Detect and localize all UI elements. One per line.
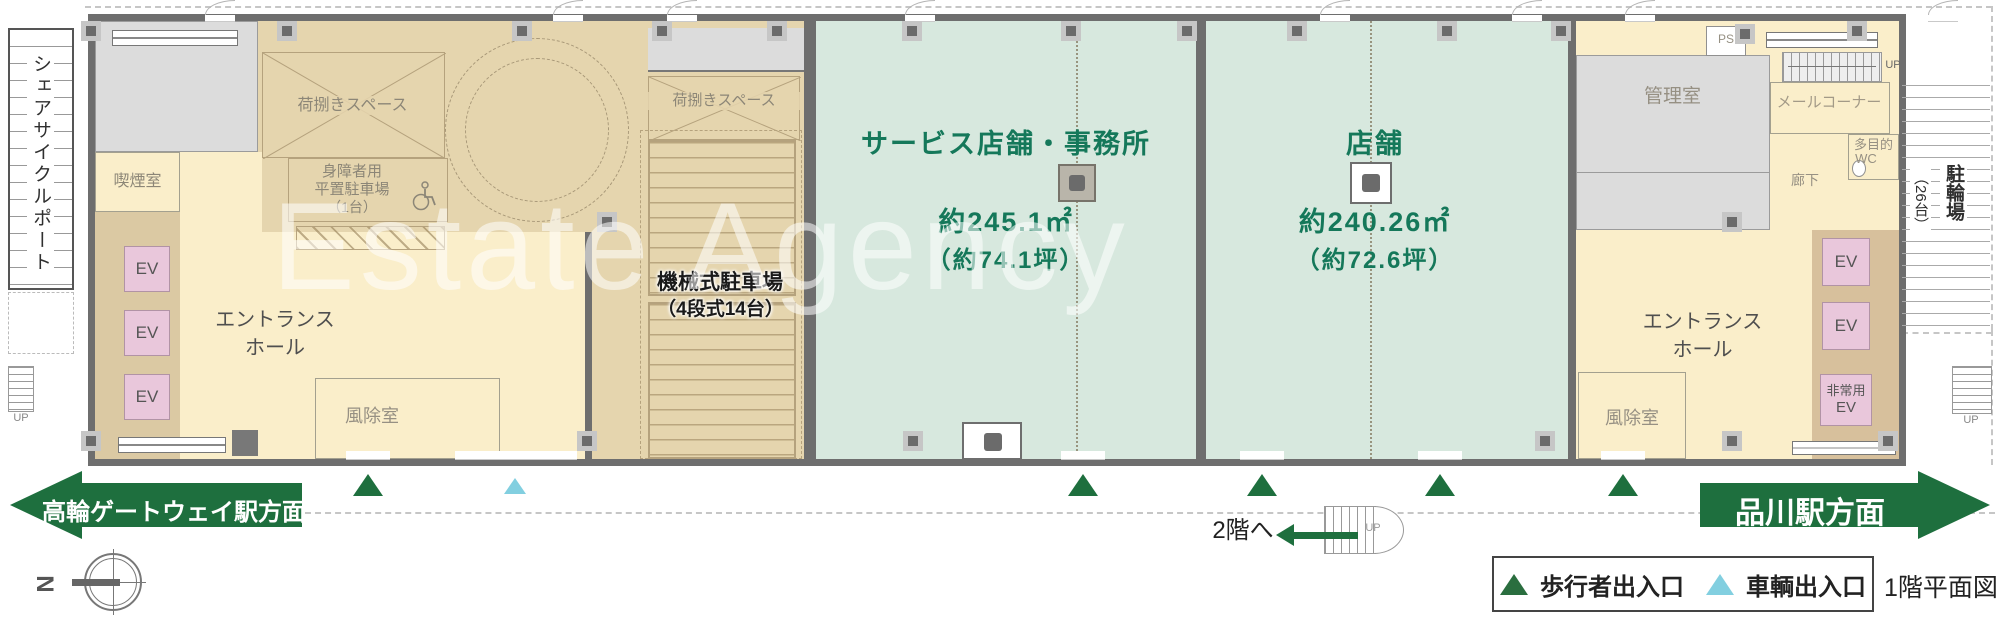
bicycle-parking-label: 駐輪場: [1940, 162, 1967, 223]
column-core: [1069, 175, 1085, 191]
site-boundary-line: [1991, 6, 1993, 330]
hatched-strip: [296, 226, 445, 250]
structural-column: [1878, 431, 1898, 451]
mechanical-parking-label-2: （4段式14台）: [638, 294, 803, 321]
elevator-label: EV: [1835, 316, 1858, 336]
legend: 歩行者出入口 車輌出入口: [1492, 556, 1874, 612]
compass-needle: [72, 579, 120, 586]
pedestrian-entrance-marker: [353, 474, 383, 496]
windbreak-left-label: 風除室: [322, 406, 422, 428]
disabled-parking-label-1: 身障者用: [292, 163, 412, 181]
structural-column: [277, 21, 297, 41]
emergency-elevator-label-2: EV: [1836, 399, 1856, 417]
stair-arrow-line: [1788, 66, 1876, 67]
turntable-inner: [465, 58, 609, 202]
structural-column: [652, 21, 672, 41]
to-second-floor-label: 2階へ: [1208, 517, 1278, 546]
structural-column-box: [1350, 162, 1392, 204]
vehicle-entrance-icon: [1706, 574, 1734, 595]
compass-north-label: N: [33, 575, 61, 592]
legend-pedestrian-label: 歩行者出入口: [1540, 567, 1684, 602]
vehicle-entrance-marker: [504, 478, 526, 494]
mail-corner-label: メールコーナー: [1768, 94, 1890, 112]
smoking-room-label: 喫煙室: [95, 172, 180, 191]
share-cycle-port-extension: [8, 292, 74, 354]
bicycle-parking-count-label: （26台）: [1910, 168, 1931, 234]
corridor-left: [180, 152, 262, 232]
pedestrian-entrance-marker: [1425, 474, 1455, 496]
elevator-label: EV: [136, 387, 159, 407]
wheelchair-icon: [408, 180, 438, 212]
structural-column: [1061, 21, 1081, 41]
disabled-parking-label-3: （1台）: [307, 199, 397, 216]
share-cycle-port-label: シェアサイクルポート: [27, 52, 54, 276]
door-opening: [1625, 15, 1655, 22]
structural-column: [767, 21, 787, 41]
elevator-label: EV: [136, 323, 159, 343]
structural-column: [1177, 21, 1197, 41]
door-opening: [553, 15, 583, 22]
outside-stair-right: [1952, 366, 1992, 414]
legend-vehicle-label: 車輌出入口: [1746, 567, 1866, 602]
left-direction-label: 高輪ゲートウェイ駅方面: [42, 492, 302, 527]
wall: [585, 232, 592, 459]
door-opening: [1240, 451, 1284, 460]
structural-column: [1722, 431, 1742, 451]
door-swing-arc: [553, 0, 583, 15]
door-swing-arc: [905, 0, 935, 15]
structural-column: [902, 21, 922, 41]
door-opening: [1928, 15, 1958, 22]
pedestrian-entrance-marker: [1247, 474, 1277, 496]
elevator-left-2: EV: [124, 310, 170, 356]
windbreak-right-label: 風除室: [1582, 408, 1682, 430]
entrance-hall-left-label-1: エントランス: [175, 308, 375, 332]
structural-column: [577, 431, 597, 451]
entrance-hall-right-label-1: エントランス: [1595, 310, 1810, 334]
manager-room-divider: [1576, 172, 1770, 173]
structural-column: [1535, 431, 1555, 451]
manager-room: [1576, 55, 1770, 230]
corridor-label: 廊下: [1780, 172, 1830, 189]
door-opening: [346, 451, 390, 460]
pedestrian-entrance-icon: [1500, 574, 1528, 595]
door-opening: [1320, 15, 1350, 22]
right-arrow-head: [1918, 471, 1990, 539]
site-boundary-line: [85, 6, 1992, 8]
mechanical-parking-label-1: 機械式駐車場: [640, 266, 800, 296]
floor-mat: [232, 430, 258, 456]
structural-column: [597, 212, 617, 232]
door-opening: [1061, 451, 1105, 460]
wc-label-2: WC: [1844, 151, 1888, 167]
outside-stair-left: [8, 366, 34, 412]
door-opening: [1601, 451, 1645, 460]
structural-column: [1551, 21, 1571, 41]
elevator-label: EV: [136, 259, 159, 279]
pedestrian-entrance-marker: [1068, 474, 1098, 496]
emergency-elevator-label-1: 非常用: [1826, 383, 1865, 399]
wall: [804, 21, 816, 459]
door-swing-arc: [205, 0, 235, 15]
structural-column: [81, 431, 101, 451]
disabled-parking-label-2: 平置駐車場: [287, 181, 417, 199]
structural-column: [1287, 21, 1307, 41]
stair-up-label: UP: [6, 412, 36, 425]
loading-space-1-label: 荷捌きスペース: [270, 96, 435, 115]
to-2f-arrow-body: [1292, 532, 1358, 539]
column-core: [1362, 174, 1380, 192]
door-opening: [1512, 15, 1542, 22]
structural-column: [903, 431, 923, 451]
door-swing-arc: [1512, 0, 1542, 15]
tenant-shop-area-tsubo: （約72.6坪）: [1205, 240, 1545, 275]
stair-top-right: [1782, 52, 1882, 82]
door-swing-arc: [1320, 0, 1350, 15]
tenant-service-area-sqm: 約245.1㎡: [826, 200, 1186, 239]
entrance-hall-right-label-2: ホール: [1595, 338, 1810, 362]
structural-column: [1722, 212, 1742, 232]
pedestrian-entrance-marker: [1608, 474, 1638, 496]
structural-column-box: [1058, 164, 1096, 202]
louver-top-left: [112, 30, 238, 46]
structural-column: [1437, 21, 1457, 41]
door-swing-arc: [667, 0, 697, 15]
tenant-shop-name: 店舗: [1205, 122, 1545, 161]
elevator-right-2: EV: [1822, 302, 1870, 350]
elevator-left-1: EV: [124, 246, 170, 292]
tenant-shop-area-sqm: 約240.26㎡: [1205, 200, 1545, 239]
tenant-service-area-tsubo: （約74.1坪）: [826, 240, 1186, 275]
elevator-right-1: EV: [1822, 238, 1870, 286]
loading-space-2-label: 荷捌きスペース: [648, 92, 800, 110]
manager-room-label: 管理室: [1580, 86, 1765, 109]
stair-up-label: UP: [1360, 522, 1386, 535]
louver-bottom-left: [118, 437, 226, 453]
emergency-elevator: 非常用 EV: [1820, 374, 1872, 426]
door-opening: [1418, 451, 1462, 460]
ps-label: PS: [1706, 32, 1746, 46]
plan-title: 1階平面図: [1884, 568, 1998, 604]
wall: [1568, 21, 1576, 459]
tenant-service-door-recess: [962, 422, 1022, 460]
stair-up-label: UP: [1956, 414, 1986, 427]
door-swing-arc: [1625, 0, 1655, 15]
elevator-left-3: EV: [124, 374, 170, 420]
door-core: [984, 433, 1002, 451]
floor-plan-canvas: シェアサイクルポート UP 喫煙室 EV EV EV エントランス ホール 風除…: [0, 0, 2000, 624]
tenant-service-name: サービス店舗・事務所: [826, 122, 1186, 161]
elevator-label: EV: [1835, 252, 1858, 272]
door-opening: [205, 15, 235, 22]
door-swing-arc: [1928, 0, 1958, 15]
structural-column: [512, 21, 532, 41]
entrance-hall-left-label-2: ホール: [175, 336, 375, 360]
site-boundary-line: [1902, 332, 1992, 334]
structural-column: [1847, 21, 1867, 41]
parking-pallets-lower: [648, 302, 796, 459]
structural-column: [81, 21, 101, 41]
right-direction-label: 品川駅方面: [1705, 488, 1915, 532]
vehicle-opening: [455, 451, 577, 460]
stair-up-label: UP: [1880, 59, 1906, 72]
